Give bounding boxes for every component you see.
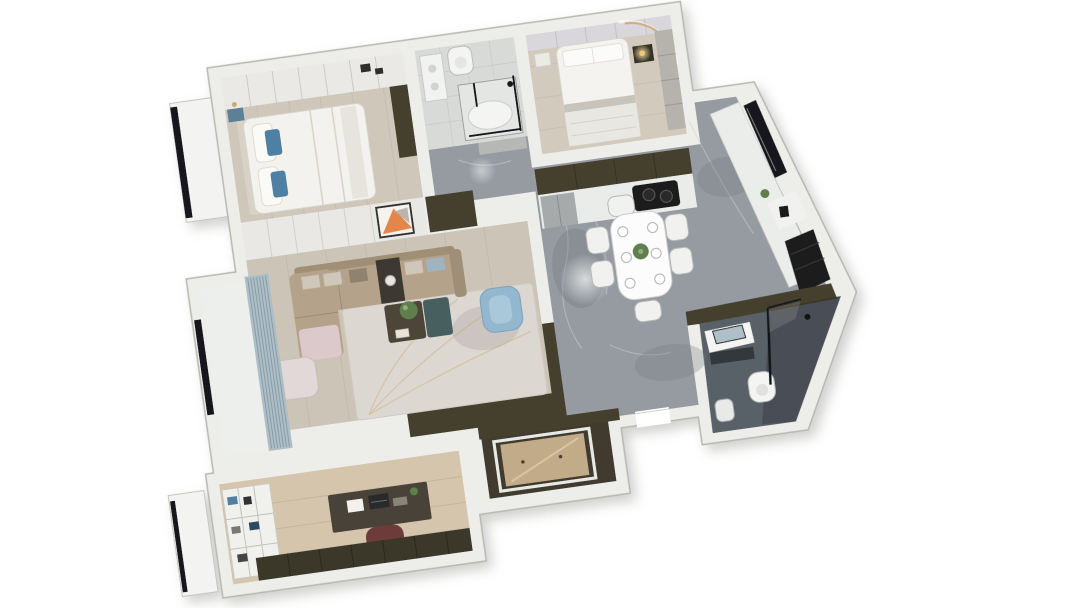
teal-nightstand xyxy=(227,107,245,122)
dark-closet-nook xyxy=(425,190,478,232)
shelf-item xyxy=(237,553,248,562)
pink-throw xyxy=(298,324,342,361)
floor-plan-canvas xyxy=(0,0,1080,608)
shelf-item xyxy=(249,521,260,530)
throw-pillow xyxy=(323,271,343,286)
throw-pillow-dark xyxy=(349,268,369,283)
plan-rotated-group xyxy=(110,0,886,604)
throw-pillow xyxy=(301,274,321,289)
floor-plan-svg xyxy=(0,0,1080,608)
decor-object xyxy=(375,68,384,75)
dining-chair xyxy=(664,213,689,242)
decor-object xyxy=(360,63,371,72)
throw-pillow xyxy=(404,260,424,275)
dining-chair xyxy=(669,246,694,275)
dining-chair xyxy=(585,226,610,255)
shelf-item xyxy=(227,496,238,505)
coffee-table-teal xyxy=(422,297,453,338)
shelf-item xyxy=(231,526,241,534)
shelf-item xyxy=(243,496,252,505)
white-nightstand xyxy=(534,52,551,67)
coffee-maker xyxy=(779,206,789,218)
throw-pillow-blue xyxy=(426,257,446,272)
paper xyxy=(347,499,365,513)
bidet xyxy=(714,398,735,422)
dining-chair xyxy=(590,260,615,289)
book xyxy=(395,329,409,339)
dining-chair xyxy=(634,299,663,322)
